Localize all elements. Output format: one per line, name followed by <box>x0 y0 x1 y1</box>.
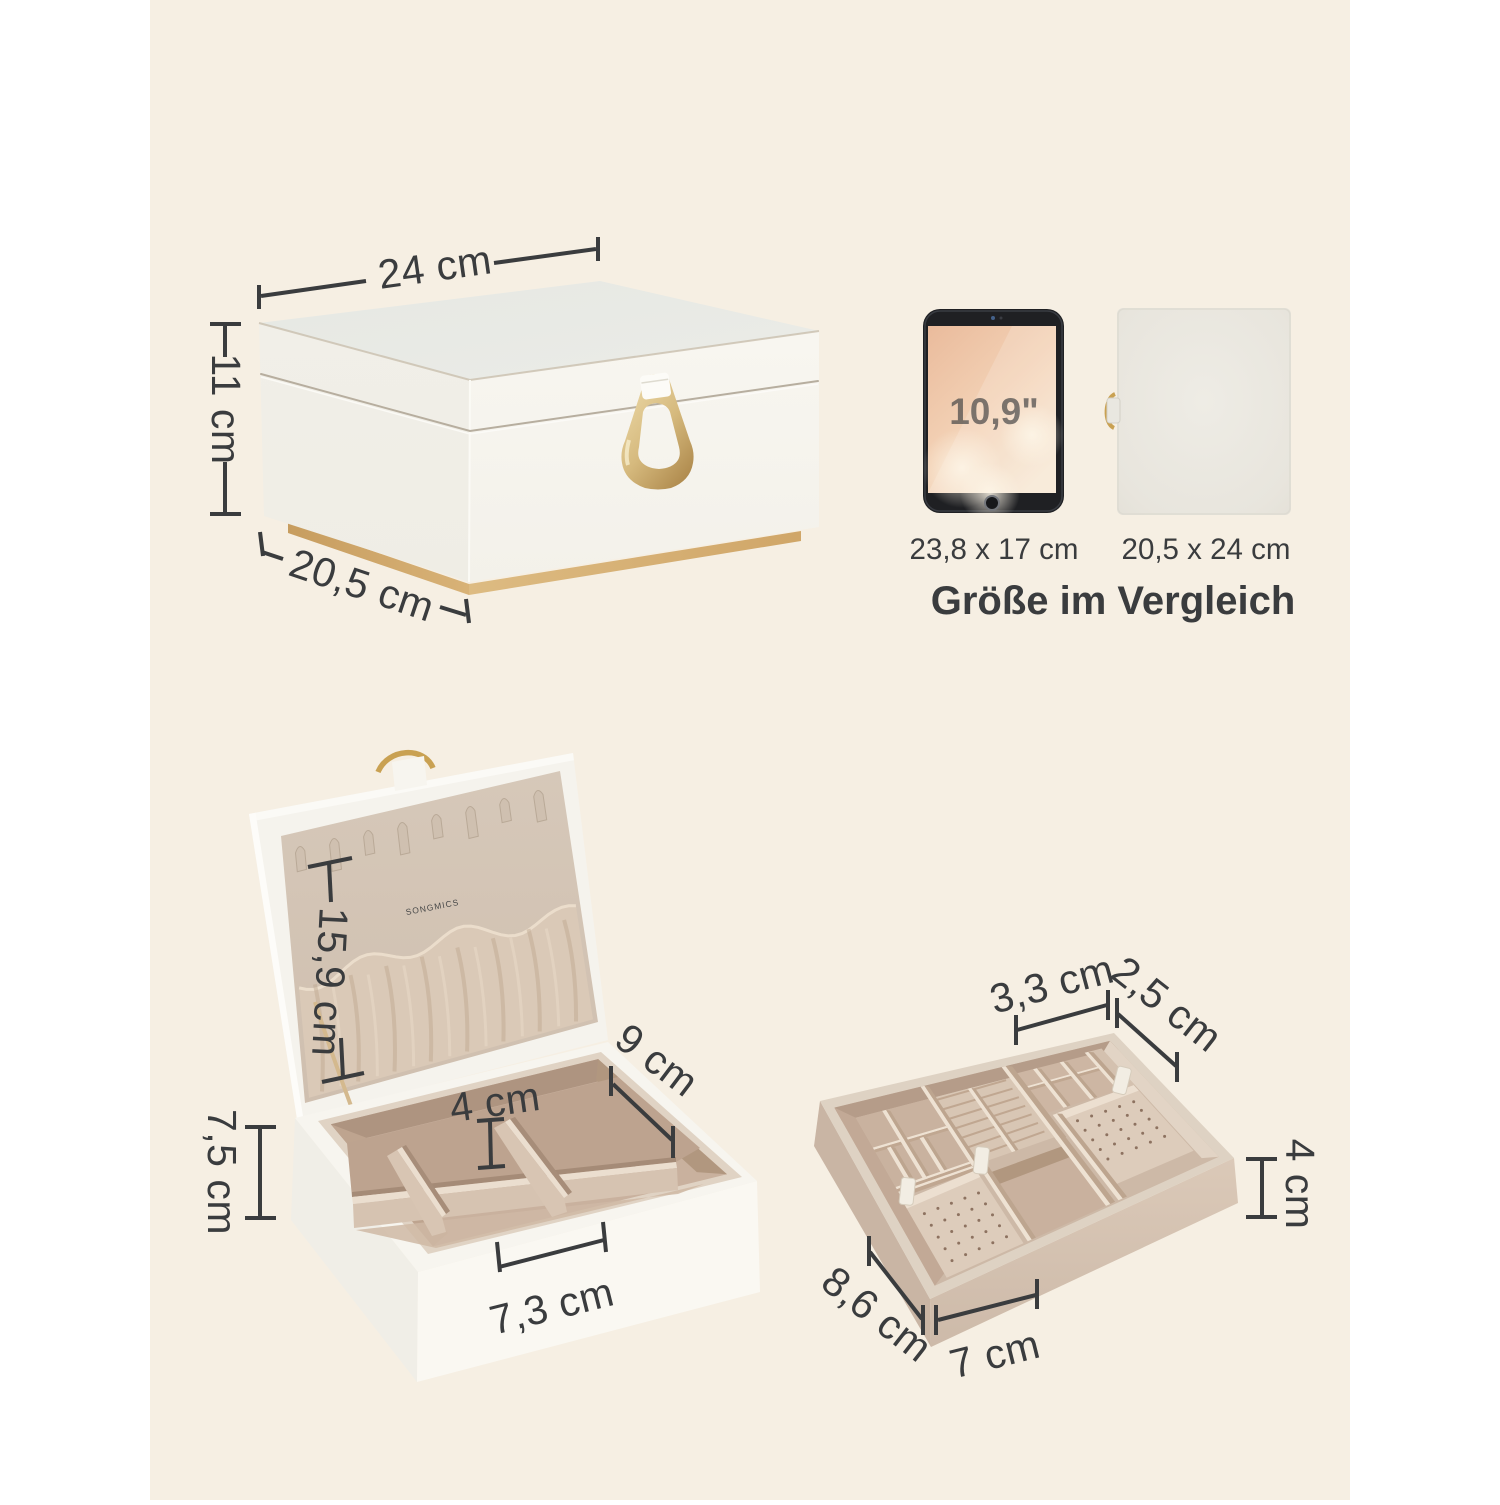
svg-text:11 cm: 11 cm <box>203 353 249 464</box>
svg-text:Größe im Vergleich: Größe im Vergleich <box>931 579 1296 623</box>
svg-text:20,5 x 24 cm: 20,5 x 24 cm <box>1122 533 1291 566</box>
svg-text:10,9": 10,9" <box>949 391 1039 432</box>
svg-text:23,8 x 17 cm: 23,8 x 17 cm <box>910 533 1079 566</box>
svg-text:15,9 cm: 15,9 cm <box>303 906 357 1058</box>
svg-text:4 cm: 4 cm <box>1277 1139 1323 1230</box>
svg-text:7,5 cm: 7,5 cm <box>199 1109 245 1235</box>
